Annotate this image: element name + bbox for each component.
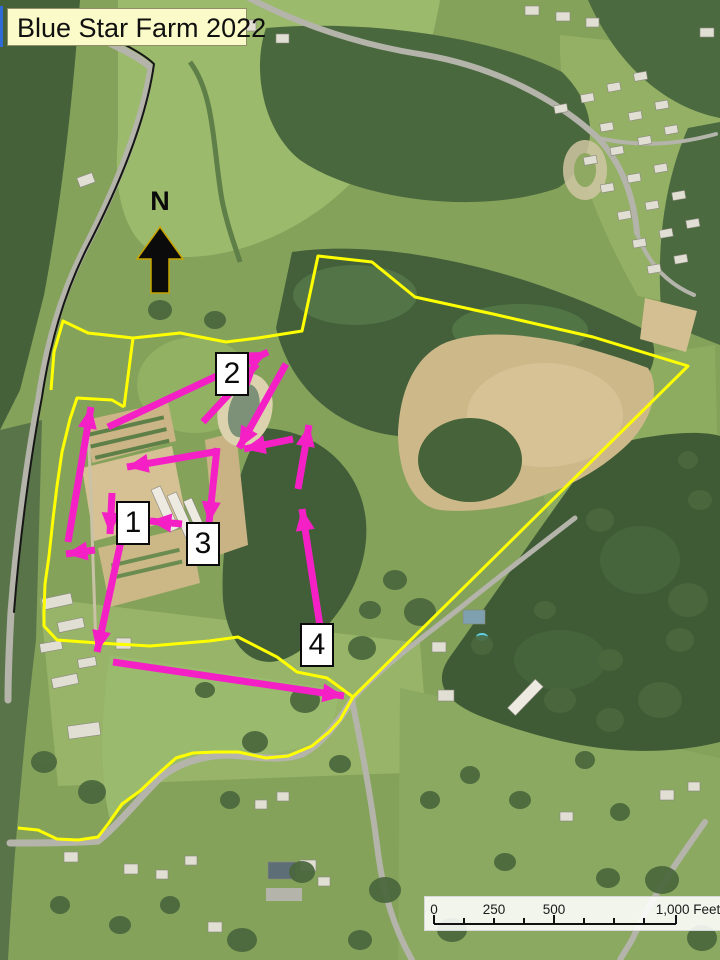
field-label-4: 4 [300, 623, 334, 667]
route-arrow-11 [97, 541, 121, 652]
north-indicator: N [125, 186, 195, 298]
map-title: Blue Star Farm 2022 [7, 8, 247, 46]
neatline-sliver [0, 6, 3, 47]
route-arrow-3 [110, 493, 112, 534]
field-label-1: 1 [116, 501, 150, 545]
route-arrow-5 [127, 452, 214, 467]
north-label: N [125, 186, 195, 217]
route-arrow-13 [302, 509, 320, 626]
scale-bar: 02505001,000 Feet [424, 896, 720, 931]
route-arrow-6 [209, 448, 217, 523]
route-arrow-1 [68, 407, 91, 542]
route-arrow-14 [298, 425, 309, 489]
route-arrow-4 [150, 521, 182, 524]
field-label-3: 3 [186, 522, 220, 566]
route-arrow-2 [66, 550, 95, 554]
scale-ruler [425, 897, 720, 930]
map-canvas: Blue Star Farm 2022 N 1234 02505001,000 … [0, 0, 720, 960]
route-arrow-12 [113, 662, 344, 696]
route-arrow-10 [244, 439, 293, 449]
property-boundary-1 [44, 256, 688, 697]
property-boundary-3 [18, 697, 353, 840]
field-label-2: 2 [215, 352, 249, 396]
property-boundary-2 [51, 321, 133, 390]
annotation-overlay [0, 0, 720, 960]
